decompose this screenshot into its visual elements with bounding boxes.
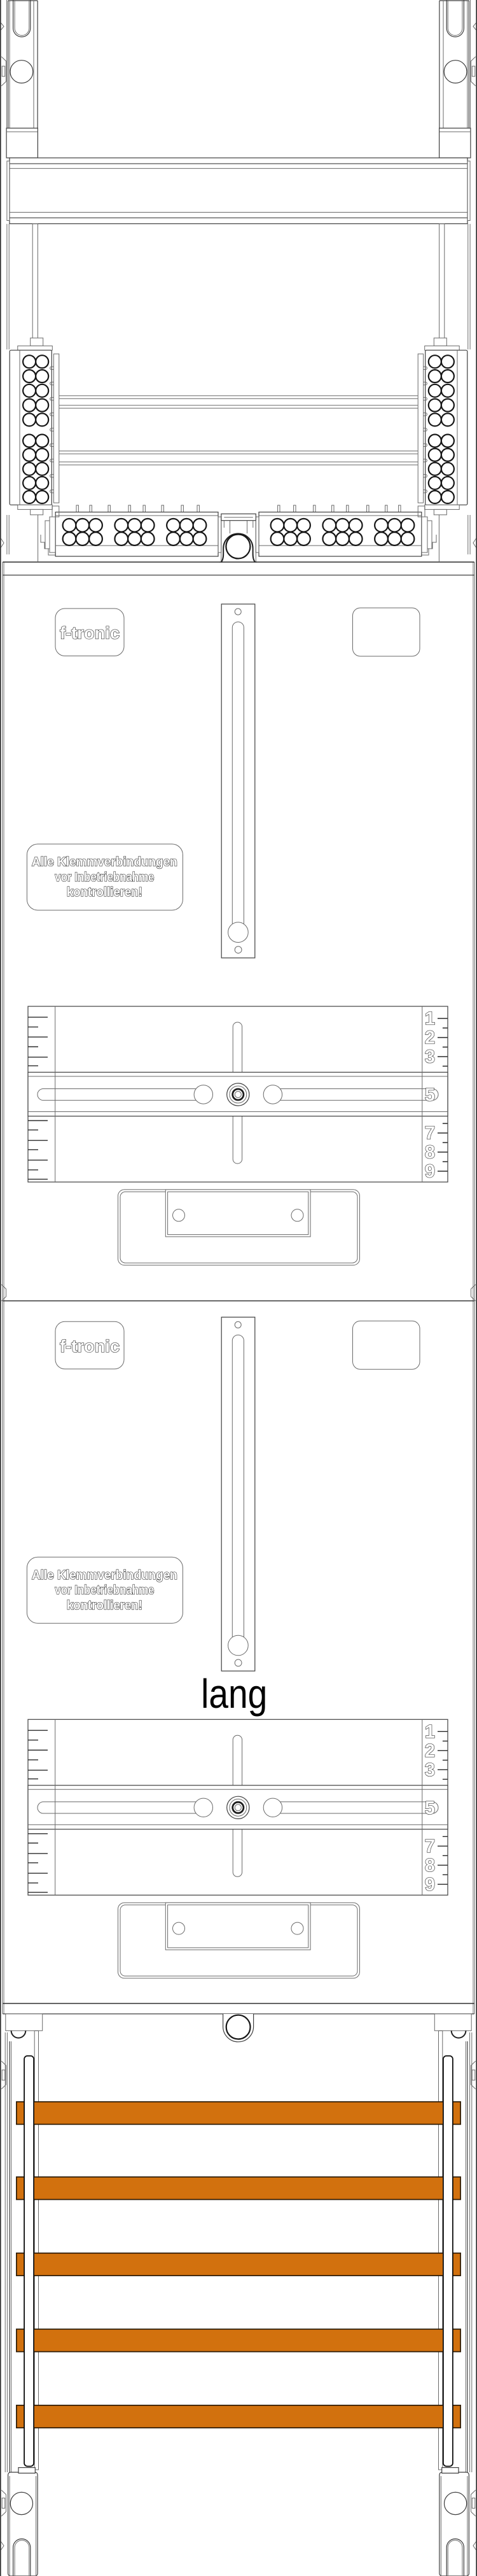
svg-text:2: 2 [425, 1741, 435, 1761]
svg-text:kontrollieren!: kontrollieren! [67, 1598, 142, 1612]
svg-text:8: 8 [425, 1143, 435, 1163]
svg-text:1: 1 [425, 1722, 435, 1742]
svg-text:f-tronic: f-tronic [60, 624, 120, 643]
svg-text:kontrollieren!: kontrollieren! [67, 885, 142, 899]
svg-text:Alle Klemmverbindungen: Alle Klemmverbindungen [32, 1568, 177, 1582]
svg-text:vor Inbetriebnahme: vor Inbetriebnahme [55, 1583, 154, 1598]
svg-text:2: 2 [425, 1028, 435, 1048]
svg-text:7: 7 [425, 1123, 435, 1144]
svg-text:8: 8 [425, 1855, 435, 1876]
svg-text:1: 1 [425, 1009, 435, 1029]
svg-text:vor Inbetriebnahme: vor Inbetriebnahme [55, 869, 154, 884]
svg-text:9: 9 [425, 1875, 435, 1895]
svg-text:lang: lang [201, 1671, 267, 1717]
svg-text:3: 3 [425, 1760, 435, 1780]
svg-text:5: 5 [425, 1798, 435, 1819]
svg-text:9: 9 [425, 1162, 435, 1182]
svg-text:5: 5 [425, 1085, 435, 1106]
svg-text:f-tronic: f-tronic [60, 1337, 120, 1356]
svg-text:7: 7 [425, 1836, 435, 1857]
svg-text:Alle Klemmverbindungen: Alle Klemmverbindungen [32, 855, 177, 869]
svg-text:3: 3 [425, 1047, 435, 1067]
